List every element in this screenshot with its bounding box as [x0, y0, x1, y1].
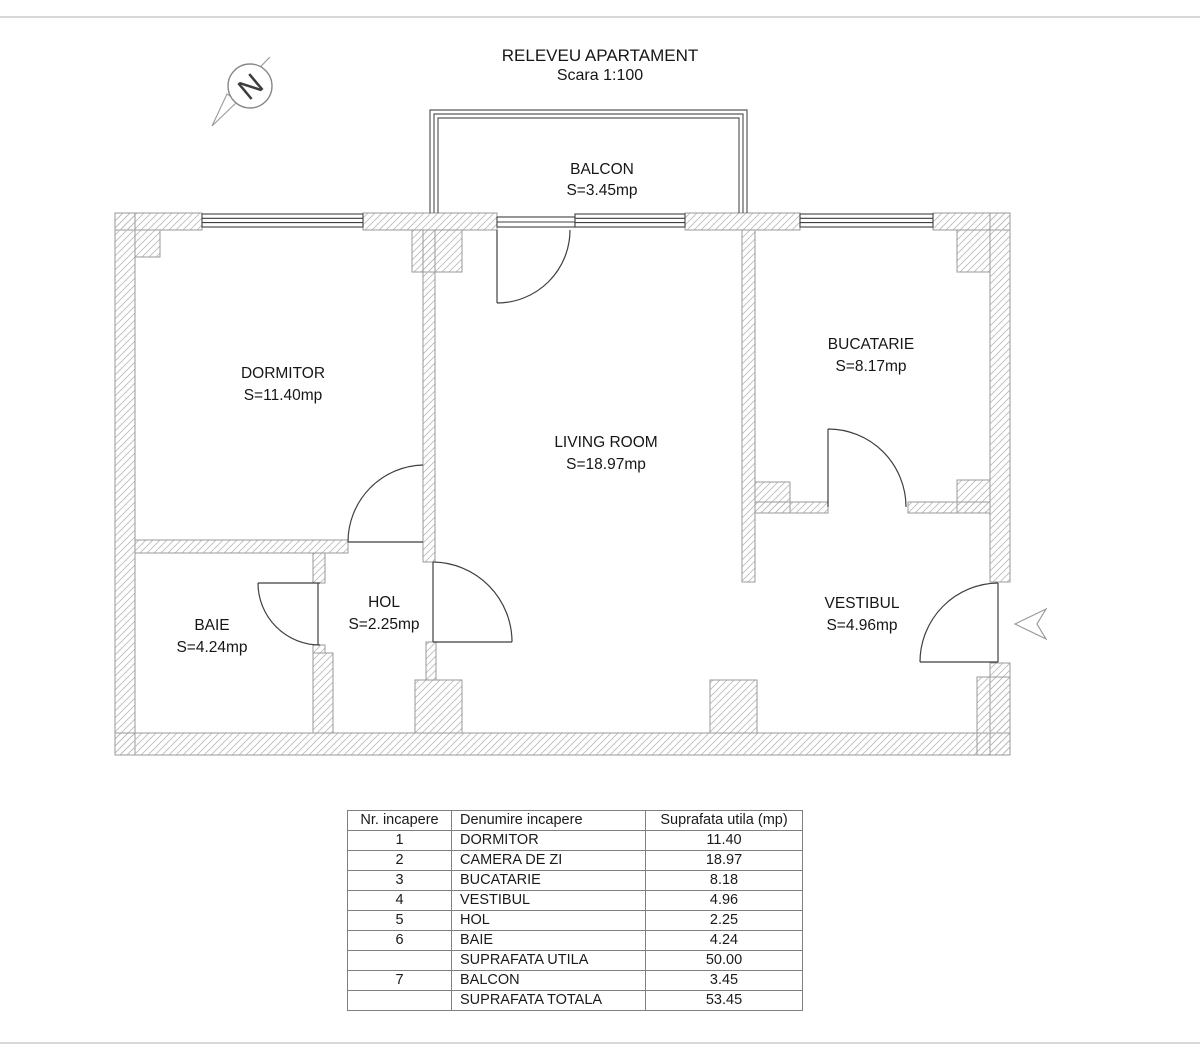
table-row: 1 DORMITOR 11.40	[348, 831, 803, 851]
table-row-total-utila: SUPRAFATA UTILA 50.00	[348, 951, 803, 971]
entrance-arrow-icon	[1015, 609, 1046, 639]
room-area-balcon: S=3.45mp	[566, 182, 637, 199]
room-area-baie: S=4.24mp	[176, 639, 247, 656]
header-area: Suprafata utila (mp)	[646, 811, 803, 831]
room-label-baie: BAIE	[194, 617, 229, 634]
table-header-row: Nr. incapere Denumire incapere Suprafata…	[348, 811, 803, 831]
table-row: 5 HOL 2.25	[348, 911, 803, 931]
pier-dormitor-topleft	[135, 230, 160, 257]
table-row: 3 BUCATARIE 8.18	[348, 871, 803, 891]
door-bucatarie	[828, 429, 906, 507]
room-area-hol: S=2.25mp	[348, 616, 419, 633]
room-label-vestibul: VESTIBUL	[825, 595, 900, 612]
table-row-total: SUPRAFATA TOTALA 53.45	[348, 991, 803, 1011]
room-label-bucatarie: BUCATARIE	[828, 336, 914, 353]
room-area-vestibul: S=4.96mp	[826, 617, 897, 634]
room-label-balcon: BALCON	[570, 161, 634, 178]
room-area-bucatarie: S=8.17mp	[835, 358, 906, 375]
window-bucatarie	[800, 214, 933, 227]
pier-divider-top	[412, 230, 462, 272]
window-living-sill	[497, 217, 575, 227]
room-label-dormitor: DORMITOR	[241, 365, 325, 382]
table-row: 7 BALCON 3.45	[348, 971, 803, 991]
room-label-living: LIVING ROOM	[554, 434, 657, 451]
window-dormitor	[202, 214, 363, 227]
door-hol-living	[433, 562, 512, 642]
interior-walls	[135, 230, 990, 733]
window-living	[575, 214, 685, 227]
header-nr: Nr. incapere	[348, 811, 452, 831]
table-row: 6 BAIE 4.24	[348, 931, 803, 951]
pier-bucatarie-topright	[957, 230, 990, 272]
page-bottom-rule	[0, 1042, 1200, 1044]
room-label-hol: HOL	[368, 594, 400, 611]
areas-table: Nr. incapere Denumire incapere Suprafata…	[347, 810, 803, 1011]
exterior-walls	[115, 213, 1010, 755]
north-indicator-icon: N	[212, 57, 272, 126]
door-balcony	[497, 230, 570, 303]
room-area-living: S=18.97mp	[566, 456, 646, 473]
door-entrance	[920, 583, 998, 662]
door-baie	[258, 583, 320, 645]
windows	[202, 214, 933, 227]
floor-plan-svg: N BALCON S=3.45mp DORMITOR S=11.40mp LIV…	[0, 0, 1200, 790]
door-dormitor	[348, 465, 423, 542]
room-area-dormitor: S=11.40mp	[244, 387, 323, 404]
header-name: Denumire incapere	[452, 811, 646, 831]
table-row: 2 CAMERA DE ZI 18.97	[348, 851, 803, 871]
table-row: 4 VESTIBUL 4.96	[348, 891, 803, 911]
room-labels: BALCON S=3.45mp DORMITOR S=11.40mp LIVIN…	[176, 161, 914, 656]
